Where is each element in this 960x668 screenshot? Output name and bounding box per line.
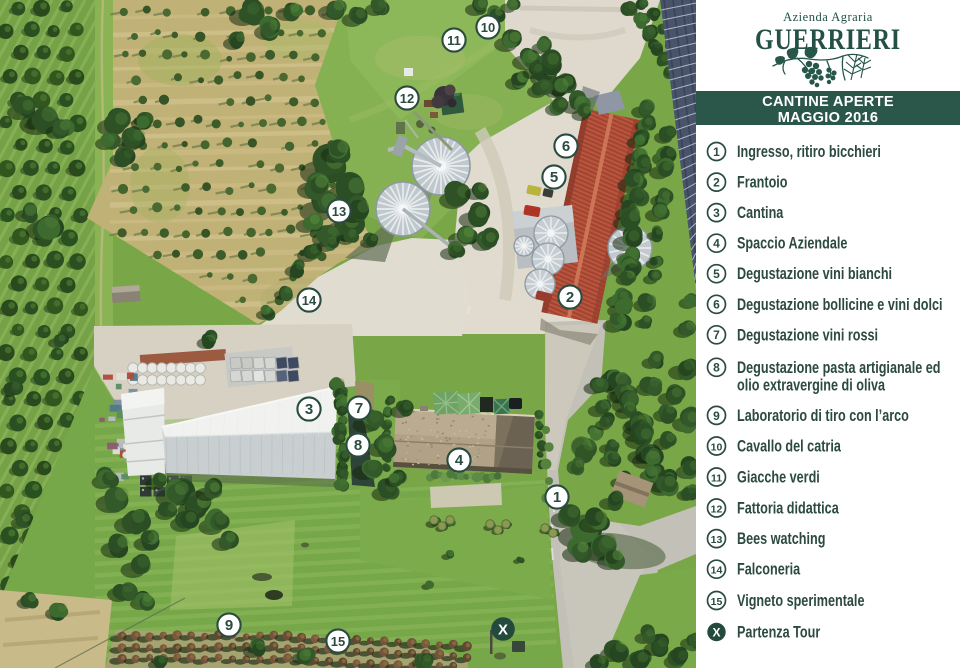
svg-text:Degustazione vini rossi: Degustazione vini rossi (737, 327, 878, 345)
svg-text:12: 12 (711, 503, 723, 515)
svg-text:14: 14 (711, 565, 723, 577)
svg-text:8: 8 (713, 361, 720, 375)
svg-text:7: 7 (355, 400, 363, 417)
svg-text:Cavallo del catria: Cavallo del catria (737, 438, 842, 456)
svg-text:3: 3 (305, 401, 313, 418)
svg-text:7: 7 (713, 328, 720, 342)
svg-text:15: 15 (711, 596, 723, 608)
svg-text:X: X (498, 621, 508, 638)
svg-text:13: 13 (332, 204, 346, 219)
svg-text:Fattoria didattica: Fattoria didattica (737, 500, 840, 518)
svg-text:Spaccio Aziendale: Spaccio Aziendale (737, 235, 847, 253)
svg-text:14: 14 (302, 293, 317, 308)
svg-text:10: 10 (481, 20, 495, 35)
svg-text:1: 1 (553, 489, 561, 506)
svg-text:13: 13 (711, 534, 723, 546)
svg-text:10: 10 (711, 441, 723, 453)
svg-text:15: 15 (331, 634, 345, 649)
svg-text:3: 3 (713, 206, 720, 220)
svg-text:6: 6 (713, 298, 720, 312)
svg-text:5: 5 (550, 169, 558, 186)
svg-text:4: 4 (713, 237, 720, 251)
svg-text:Ingresso, ritiro bicchieri: Ingresso, ritiro bicchieri (737, 144, 881, 162)
svg-text:8: 8 (354, 437, 362, 454)
svg-text:12: 12 (400, 91, 414, 106)
svg-text:11: 11 (711, 472, 722, 484)
svg-text:Bees watching: Bees watching (737, 531, 825, 549)
svg-text:Cantina: Cantina (737, 205, 784, 223)
svg-text:X: X (712, 625, 720, 639)
svg-text:4: 4 (455, 452, 464, 469)
svg-text:Degustazione pasta artigianale: Degustazione pasta artigianale ed (737, 359, 940, 377)
svg-text:Laboratorio di tiro con l’arco: Laboratorio di tiro con l’arco (737, 408, 909, 426)
svg-text:2: 2 (713, 176, 720, 190)
svg-text:9: 9 (225, 617, 233, 634)
svg-text:2: 2 (566, 289, 574, 306)
svg-text:Giacche verdi: Giacche verdi (737, 469, 820, 487)
svg-text:Degustazione bollicine e vini: Degustazione bollicine e vini dolci (737, 296, 943, 314)
svg-text:6: 6 (562, 138, 570, 155)
svg-text:Vigneto sperimentale: Vigneto sperimentale (737, 593, 864, 611)
svg-text:5: 5 (713, 267, 720, 281)
svg-text:Falconeria: Falconeria (737, 561, 801, 579)
svg-text:Partenza Tour: Partenza Tour (737, 624, 821, 642)
svg-text:11: 11 (447, 33, 461, 48)
svg-text:9: 9 (713, 409, 720, 423)
svg-text:Degustazione vini bianchi: Degustazione vini bianchi (737, 266, 892, 284)
svg-text:Frantoio: Frantoio (737, 174, 788, 192)
svg-text:olio extravergine di oliva: olio extravergine di oliva (737, 377, 886, 395)
svg-text:1: 1 (713, 145, 720, 159)
